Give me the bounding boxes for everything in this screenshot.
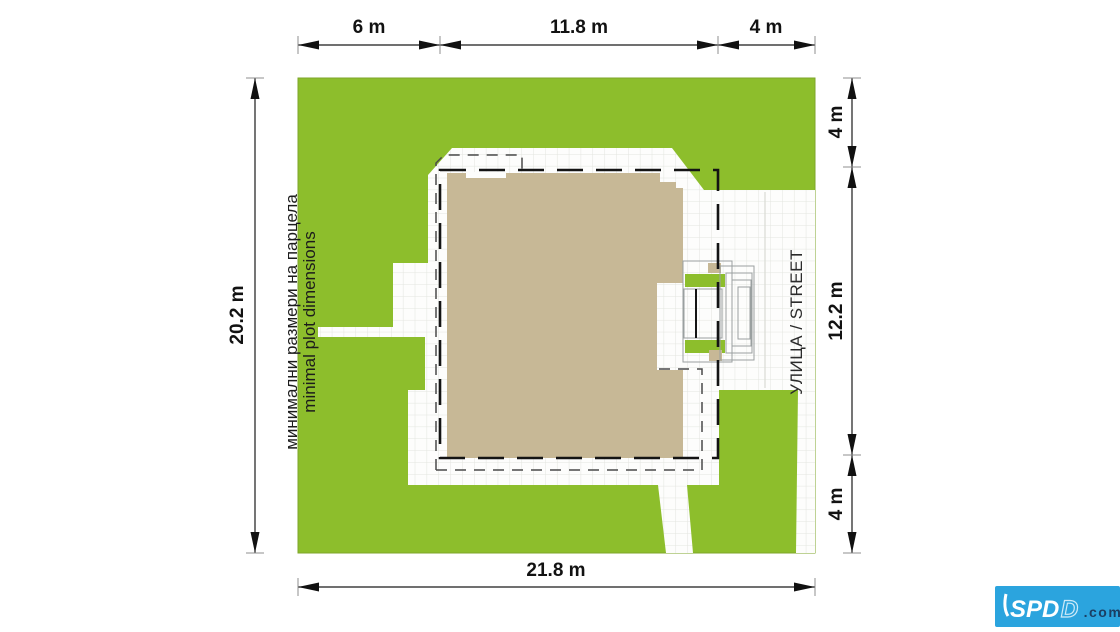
dim-label-right-middle: 12.2 m [826,281,847,340]
dim-label-top-middle: 11.8 m [550,17,608,38]
roof-skylight-slot [466,172,506,178]
plot-annotation: минимални размери на парцела minimal plo… [282,194,319,450]
plot-annotation-en: minimal plot dimensions [300,231,319,412]
street-label: УЛИЦА / STREET [787,249,806,395]
dim-label-top-left: 6 m [353,17,386,38]
plot-annotation-bg: минимални размери на парцела [282,194,301,450]
dim-label-right-bottom: 4 m [826,488,847,521]
logo-suffix-text: .com [1084,604,1120,620]
site-logo[interactable]: SPD D .com [995,586,1120,627]
site-plan-drawing: УЛИЦА / STREET 6 m 11.8 m 4 m [0,0,1120,632]
dim-label-top-right: 4 m [750,17,783,38]
house-footprint [447,173,683,458]
dim-label-bottom: 21.8 m [526,560,585,581]
logo-brand-outline-text: D [1061,596,1078,623]
dim-label-left: 20.2 m [227,285,248,344]
logo-brand-text: SPD [1010,596,1059,623]
site-plan-page: УЛИЦА / STREET 6 m 11.8 m 4 m [0,0,1120,632]
dim-label-right-top: 4 m [826,106,847,139]
